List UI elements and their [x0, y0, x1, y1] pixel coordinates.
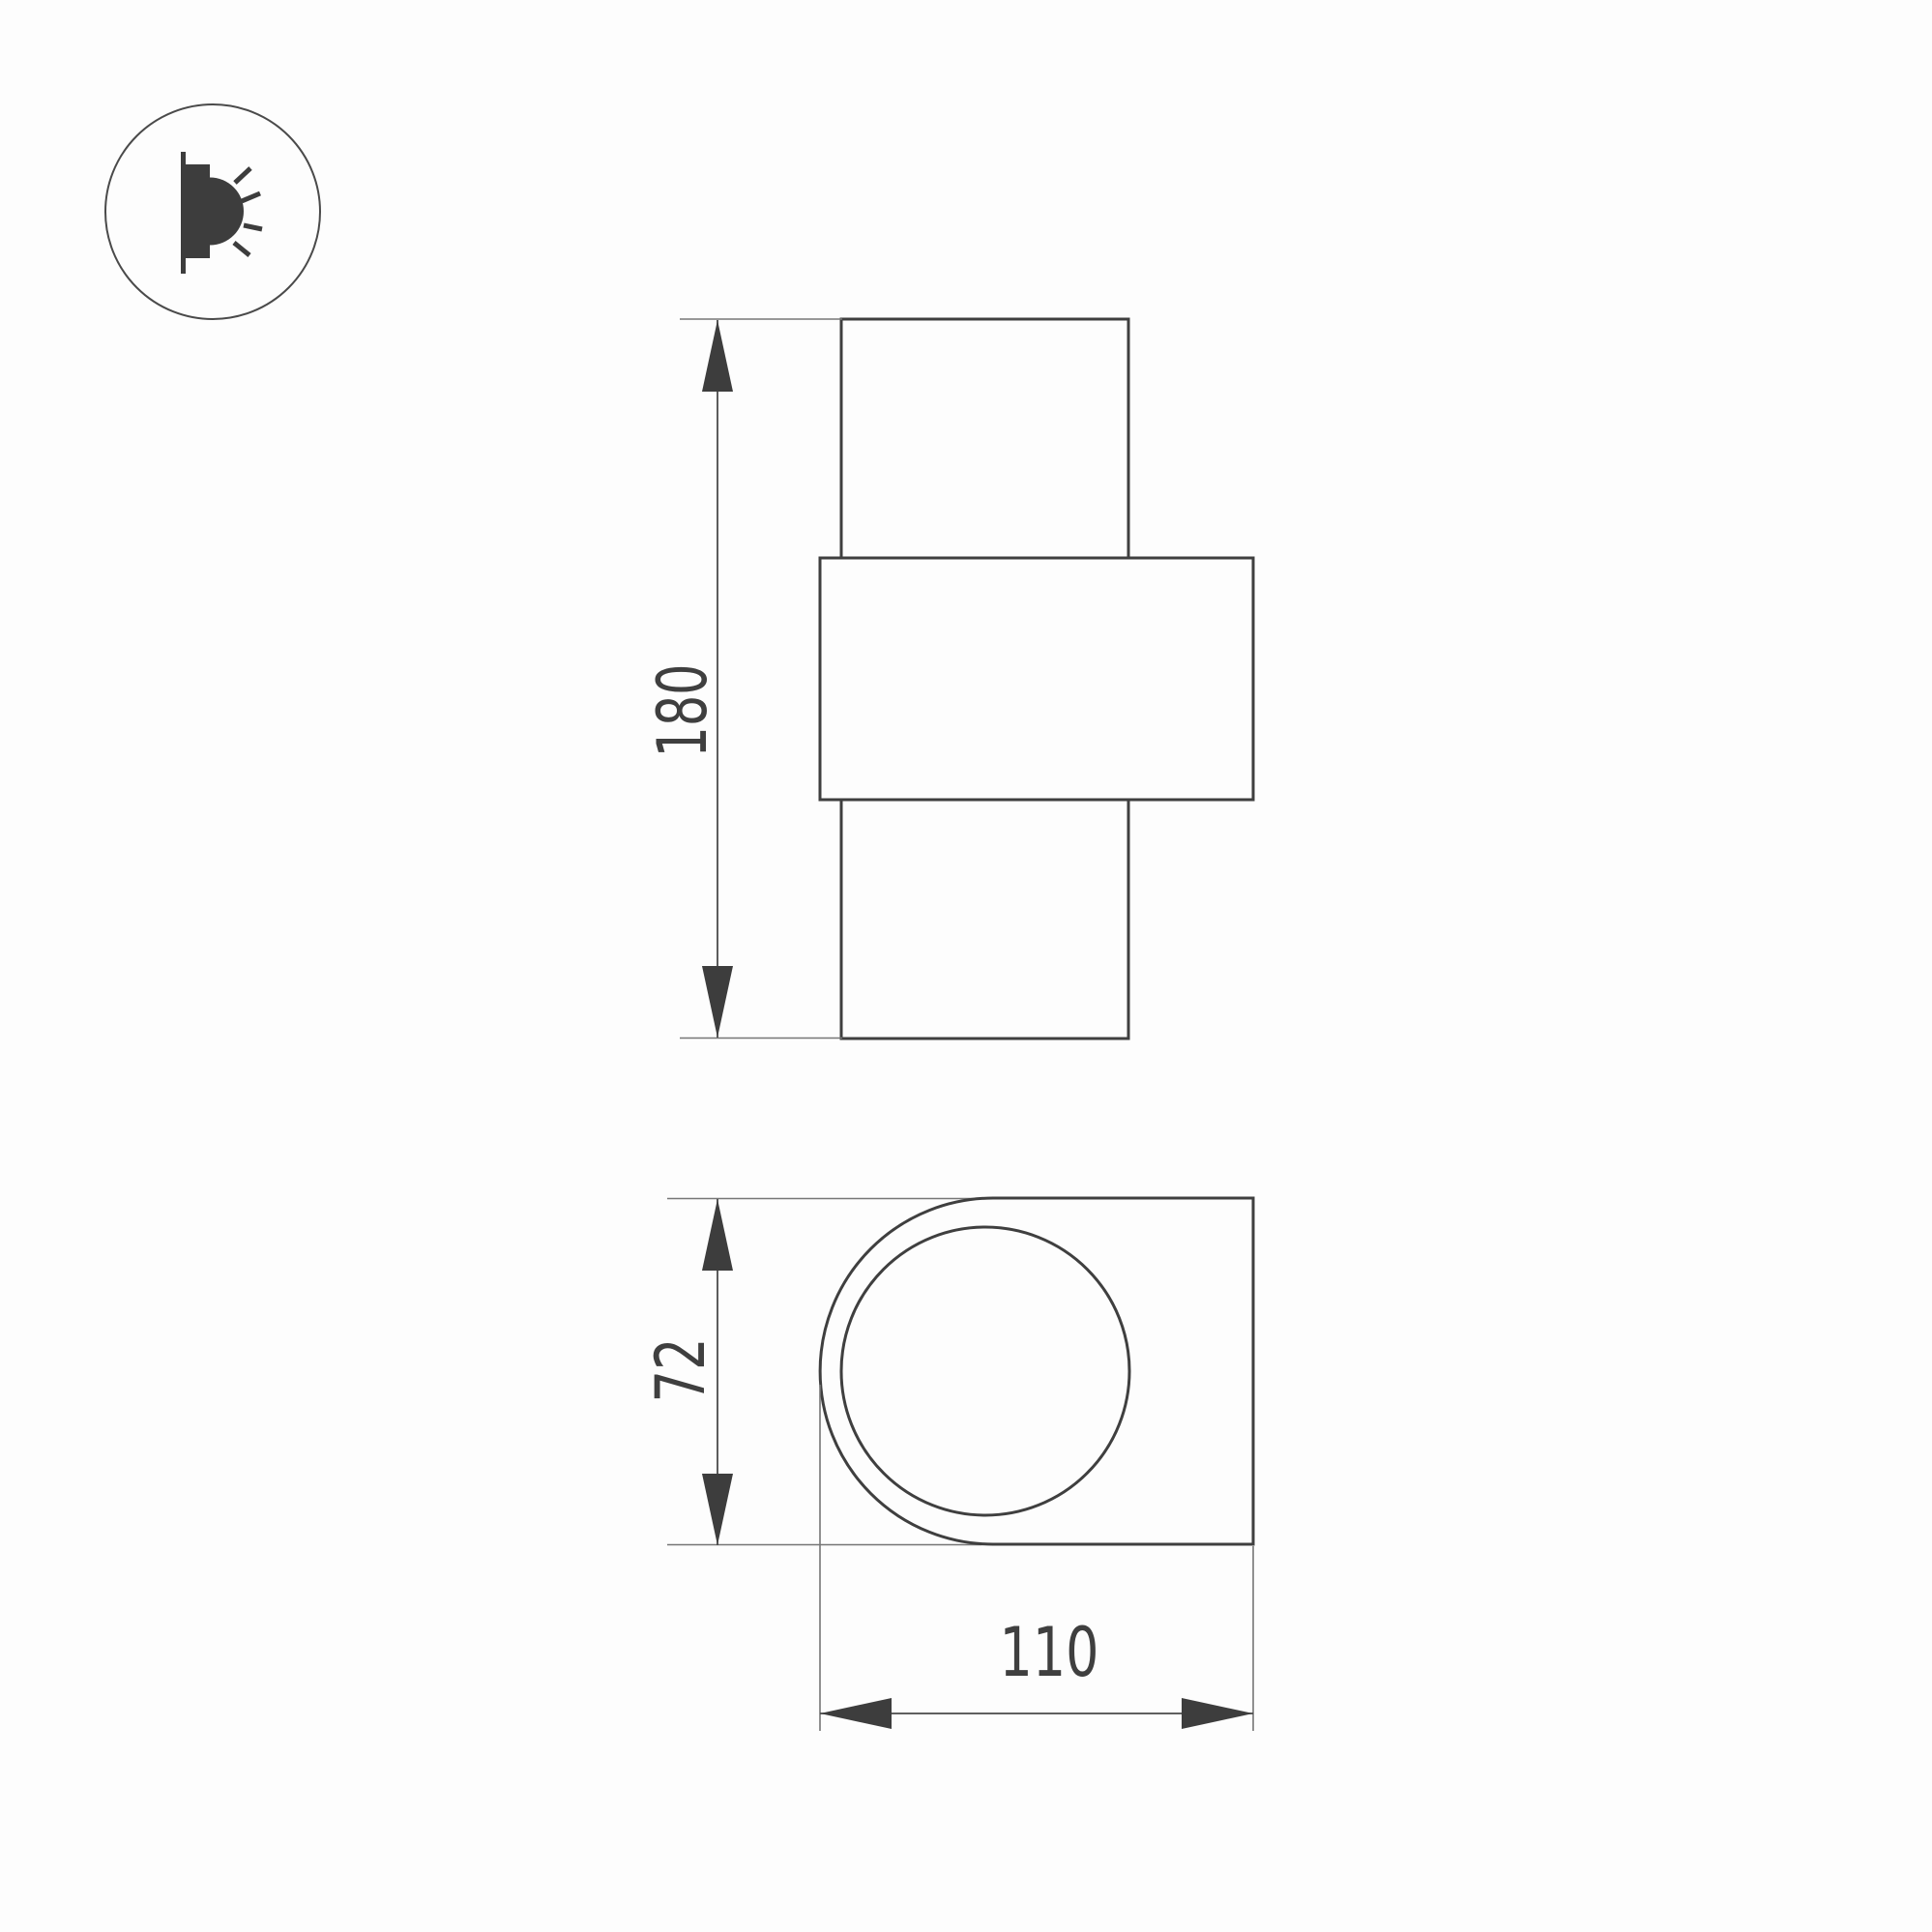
- front-height-dimension: 180: [643, 319, 842, 1039]
- wall-lamp-dimension-drawing: 180 72 110: [0, 0, 1932, 1932]
- front-middle-body: [820, 558, 1253, 800]
- side-height-label: 72: [641, 1338, 720, 1403]
- wall-light-icon: [105, 104, 320, 319]
- arrow-up-icon: [702, 1199, 733, 1271]
- side-height-dimension: 72: [641, 1199, 733, 1545]
- icon-light-beam: [210, 178, 244, 246]
- icon-light-ray: [234, 243, 249, 255]
- front-bottom-cylinder: [841, 800, 1128, 1039]
- icon-lamp-body: [186, 164, 210, 258]
- arrow-down-icon: [702, 1474, 733, 1545]
- arrow-down-icon: [702, 966, 733, 1038]
- side-body-outline: [820, 1198, 1253, 1544]
- front-top-cylinder: [841, 319, 1128, 558]
- icon-light-ray: [242, 193, 260, 201]
- front-view: [820, 319, 1253, 1039]
- icon-light-ray: [235, 168, 250, 183]
- arrow-up-icon: [702, 320, 733, 392]
- front-height-label: 180: [643, 664, 722, 758]
- arrow-right-icon: [1182, 1698, 1253, 1729]
- side-width-label: 110: [1000, 1613, 1099, 1692]
- technical-drawing-page: 180 72 110: [0, 0, 1932, 1932]
- side-view: [667, 1198, 1253, 1545]
- icon-light-ray: [244, 225, 262, 229]
- icon-wall-line: [181, 152, 186, 274]
- arrow-left-icon: [820, 1698, 892, 1729]
